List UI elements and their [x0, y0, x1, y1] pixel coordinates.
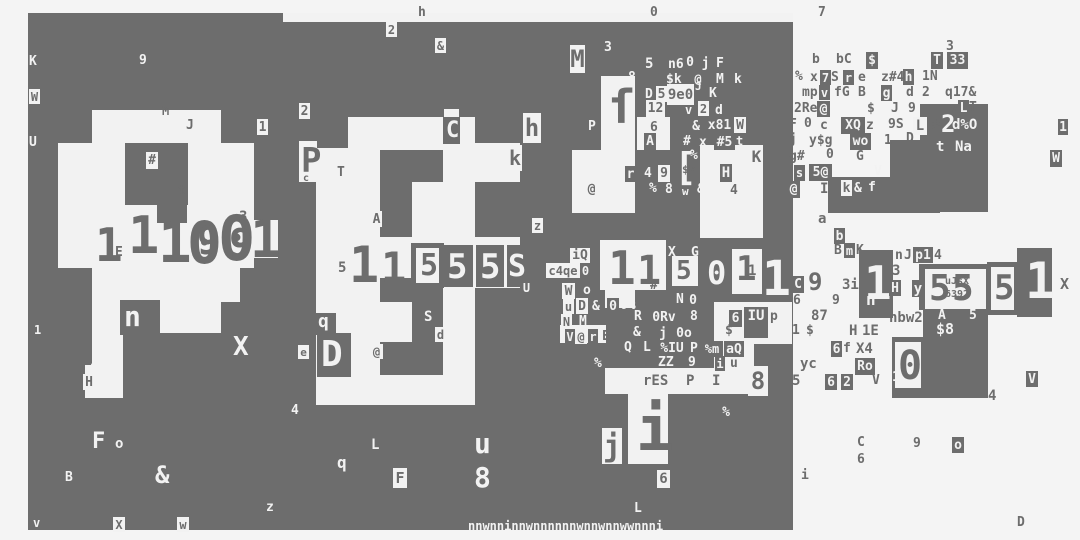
glyph: i — [801, 469, 809, 482]
glyph: u — [730, 357, 738, 370]
glyph: h — [903, 69, 914, 85]
glyph: W — [734, 117, 746, 133]
glyph: n — [866, 292, 876, 308]
glyph: % — [720, 404, 732, 420]
glyph: G — [856, 150, 864, 163]
glyph: X — [233, 334, 249, 360]
glyph: K — [29, 55, 37, 68]
glyph: $8 — [936, 322, 954, 337]
glyph: 8 — [665, 183, 673, 196]
glyph: g — [881, 85, 892, 101]
glyph: y$g — [809, 134, 832, 147]
glyph: $ — [866, 52, 878, 69]
glyph: h — [418, 6, 426, 19]
glyph: $ — [867, 102, 875, 115]
glyph: 0 — [607, 298, 619, 314]
glyph: A — [371, 211, 382, 227]
glyph: 1 — [128, 210, 159, 262]
glyph: 1 — [792, 324, 800, 337]
glyph: 2 — [698, 101, 709, 116]
glyph: 5 — [645, 57, 653, 71]
glyph: 0 — [707, 257, 726, 289]
glyph: X4 — [856, 342, 873, 356]
glyph: h — [523, 113, 541, 143]
glitch-art-canvas: h072&K9WUMJ#t1211E11090913nXsHFoB&vXwz4q… — [0, 0, 1080, 540]
glyph: %g — [708, 151, 724, 164]
glyph: x81 — [706, 117, 733, 133]
glyph: d — [435, 327, 446, 342]
glyph: k — [734, 73, 742, 86]
glyph: mp — [802, 86, 818, 99]
gray-block — [380, 342, 443, 375]
glyph: S — [508, 252, 526, 282]
glyph: 5@ — [809, 164, 832, 181]
glyph: %m — [701, 341, 723, 357]
glyph: 5 — [676, 258, 692, 284]
glyph: 6 — [857, 453, 865, 466]
glyph: b — [812, 53, 820, 66]
glyph: n — [124, 303, 141, 331]
glyph: x — [810, 71, 818, 84]
glyph: 2 — [386, 22, 397, 37]
glyph: t — [736, 135, 743, 147]
glyph: S — [424, 310, 432, 324]
glyph: f — [843, 342, 851, 355]
glyph: L — [913, 117, 927, 135]
glyph: 0 — [804, 117, 812, 130]
glyph: 5 — [480, 250, 500, 284]
glyph: z — [266, 501, 274, 514]
glyph: P — [686, 374, 694, 388]
glyph: 1 — [257, 119, 268, 135]
glyph: D — [321, 337, 343, 373]
glyph: Q — [624, 341, 632, 354]
glyph: 1 — [884, 134, 892, 147]
glyph: I — [820, 182, 828, 196]
glyph: L — [643, 341, 651, 354]
glyph: 3 — [239, 210, 247, 224]
gray-block — [380, 182, 412, 237]
glyph: # — [932, 119, 940, 132]
glyph: M — [570, 45, 585, 73]
glyph: r — [625, 166, 636, 182]
glyph: T — [337, 166, 345, 179]
glyph: iQ — [570, 248, 590, 263]
glyph: % — [649, 182, 657, 195]
glyph: 3 — [892, 264, 900, 278]
glyph: V — [874, 165, 882, 178]
glyph: & — [435, 38, 446, 53]
glyph: aQ — [724, 341, 744, 357]
glyph: M — [579, 315, 587, 328]
glyph: c — [303, 174, 309, 184]
glyph: N — [561, 314, 572, 329]
glyph: d — [906, 86, 914, 99]
glyph: T — [931, 52, 943, 69]
glyph: 5 — [338, 261, 346, 275]
glyph: 1 — [748, 264, 756, 278]
glyph: t — [936, 140, 944, 154]
glyph: V — [565, 329, 575, 344]
glyph: 9 — [197, 222, 220, 260]
glyph: 6 — [831, 341, 842, 357]
glyph: bC — [836, 53, 852, 66]
glyph: j — [789, 133, 797, 146]
glyph: e — [298, 345, 309, 359]
glyph: 0o — [674, 325, 694, 341]
glyph: 9 — [913, 437, 921, 450]
glyph: c4qe — [546, 263, 580, 278]
glyph: D — [576, 298, 588, 314]
glyph: m — [844, 243, 855, 258]
glyph: c — [820, 119, 828, 132]
glyph: 33 — [947, 52, 968, 69]
white-block — [316, 375, 475, 405]
glyph: i — [636, 398, 673, 460]
glyph: 2 — [922, 86, 930, 99]
glyph: K — [750, 146, 763, 166]
glyph: h — [731, 151, 739, 164]
glyph: 6 — [657, 470, 670, 488]
glyph: 7 — [820, 70, 831, 85]
glyph: F — [789, 118, 797, 131]
glyph: 9 — [832, 294, 840, 307]
glyph: 0 — [684, 54, 696, 71]
glyph: v — [685, 104, 692, 116]
glyph: d — [715, 104, 723, 117]
glyph: H — [849, 324, 857, 338]
glyph: E — [602, 330, 610, 343]
glyph: 9e0 — [667, 84, 694, 105]
glyph: g# — [789, 150, 805, 163]
glyph: 5 — [792, 374, 800, 388]
glyph: S — [831, 71, 839, 84]
glyph: D — [1017, 516, 1025, 529]
glyph: 0 — [650, 6, 658, 19]
glyph: X — [1060, 277, 1069, 292]
glyph: ſ — [608, 84, 636, 130]
gray-block — [380, 150, 443, 182]
glyph: v — [33, 517, 40, 529]
glyph: X — [113, 517, 125, 532]
glyph: IU — [744, 307, 768, 325]
glyph: o — [952, 437, 964, 453]
white-block — [444, 109, 459, 117]
glyph: $ — [806, 324, 814, 337]
glyph: p1 — [913, 247, 933, 263]
white-block — [92, 110, 221, 143]
glyph: ZZ — [658, 356, 674, 369]
glyph: 6 — [793, 294, 801, 307]
glyph: U — [521, 280, 532, 295]
glyph: 2 — [299, 103, 310, 119]
glyph: x — [699, 136, 707, 149]
glyph: X — [668, 246, 676, 259]
glyph: 3 — [604, 41, 612, 54]
glyph: J — [695, 81, 702, 92]
white-block — [283, 13, 793, 22]
glyph: M — [716, 73, 724, 86]
glyph: o — [583, 284, 591, 297]
glyph: u — [474, 430, 491, 458]
glyph: Na — [955, 140, 972, 154]
glyph: @ — [575, 329, 587, 344]
glyph: rES — [643, 374, 668, 388]
glyph: s — [90, 360, 97, 372]
glyph: s — [794, 165, 805, 181]
glyph: F — [716, 57, 724, 70]
glyph: 0 — [826, 148, 834, 161]
glyph: 4 — [730, 184, 738, 197]
glyph: @ — [787, 181, 800, 198]
glyph: @ — [585, 181, 598, 198]
glyph: n — [895, 249, 903, 262]
glyph: j — [700, 55, 711, 71]
glyph: e — [858, 71, 866, 84]
glyph: a — [818, 212, 826, 226]
glyph: 6392 — [945, 290, 969, 300]
glyph: 5 — [969, 309, 977, 322]
glyph: 1 — [250, 214, 281, 266]
glyph: K — [856, 244, 864, 257]
glyph: z — [866, 119, 874, 132]
glyph: 4 — [644, 167, 652, 180]
glyph: 4 — [291, 404, 299, 417]
glyph: B — [65, 471, 73, 484]
glyph: 5 — [420, 251, 438, 281]
glyph: 2 — [841, 374, 853, 390]
glyph: 3i — [842, 278, 859, 292]
glyph: L — [958, 100, 969, 116]
glyph: j — [602, 428, 622, 464]
glyph: C — [446, 120, 459, 142]
glyph: XQ — [841, 117, 865, 134]
glyph: z — [532, 218, 543, 233]
glyph: j — [658, 325, 668, 341]
glyph: q — [337, 455, 347, 471]
glyph: 8 — [690, 310, 698, 323]
glyph: 1N — [922, 70, 938, 83]
glyph: F — [393, 468, 407, 488]
glyph: M — [162, 105, 169, 117]
glyph: f — [868, 181, 876, 194]
glyph: 4 — [988, 389, 996, 403]
glyph: @ — [370, 344, 383, 359]
glyph: G — [691, 246, 699, 259]
glyph: C — [792, 276, 804, 293]
glyph: P — [690, 342, 698, 355]
glyph: & — [592, 300, 600, 313]
glyph: 5 — [994, 271, 1014, 305]
glyph: 9 — [808, 270, 822, 294]
glyph: 0 — [580, 263, 591, 278]
glyph: $ — [725, 324, 733, 337]
glyph: 9S — [888, 118, 904, 131]
glyph: W — [562, 283, 575, 299]
glyph: 1E — [862, 324, 879, 338]
glyph: V — [872, 374, 880, 387]
glyph: K — [709, 87, 717, 100]
glyph: 1 — [762, 255, 791, 303]
glyph: k — [508, 145, 522, 171]
glyph: B — [834, 244, 842, 257]
gray-block — [828, 203, 940, 213]
glyph: & — [155, 463, 169, 487]
glyph: q — [318, 313, 329, 331]
glyph: n6 — [668, 58, 684, 71]
glyph: 1 — [349, 240, 379, 290]
glyph: E — [115, 246, 123, 259]
glyph: b — [834, 228, 845, 244]
glyph: fG — [834, 86, 850, 99]
glyph: P — [588, 120, 596, 133]
glyph: 1 — [1025, 256, 1055, 306]
glyph: H — [720, 164, 732, 182]
glyph: # — [650, 279, 658, 292]
glyph: 1 — [381, 247, 406, 289]
glyph: D — [906, 132, 914, 145]
glyph: q17& — [945, 86, 976, 99]
glyph: J — [891, 102, 899, 115]
glyph: 9 — [908, 102, 916, 115]
glyph: & — [854, 182, 862, 195]
glyph: L — [634, 502, 642, 515]
glyph: @ — [817, 101, 830, 117]
glyph: uJsX — [945, 277, 969, 287]
glyph: 0 — [898, 346, 922, 386]
glyph: w — [682, 186, 689, 197]
glyph: y — [912, 280, 924, 297]
glyph: 9 — [688, 356, 696, 369]
glyph: B — [858, 86, 866, 99]
glyph: V — [1026, 371, 1038, 387]
glyph: v — [819, 85, 830, 100]
glyph: 9 — [658, 165, 670, 182]
glyph: p — [770, 310, 778, 323]
glyph: nbw2 — [889, 311, 923, 325]
glyph: #5 — [714, 134, 735, 150]
glyph: r — [588, 329, 598, 344]
glyph: % — [795, 70, 803, 83]
glyph: N — [676, 293, 684, 306]
glyph: U — [29, 136, 37, 149]
glyph: % — [594, 357, 602, 370]
glyph: F — [92, 431, 105, 453]
glyph: J — [186, 119, 194, 132]
glyph: r — [843, 70, 854, 85]
glyph: 0Rv — [650, 309, 678, 326]
glyph: k — [841, 180, 852, 196]
glyph: 1 — [34, 324, 41, 336]
glyph: H — [83, 374, 95, 390]
glyph: t — [178, 184, 185, 196]
glyph: u — [563, 299, 574, 314]
glyph: o — [115, 437, 123, 451]
glyph: L — [371, 438, 379, 452]
glyph: nnwnninnwnnnnnnwnnwnnwwnnni — [468, 520, 663, 532]
glyph: 8 — [748, 366, 768, 396]
glyph: R — [634, 310, 642, 323]
glyph: 1 — [608, 245, 636, 291]
glyph: & — [697, 183, 705, 196]
glyph: W — [1050, 150, 1062, 167]
glyph: d%O — [952, 118, 977, 132]
glyph: J — [904, 249, 912, 262]
glyph: & — [690, 118, 702, 134]
glyph: 6 — [825, 374, 837, 390]
glyph: H — [889, 280, 901, 296]
glyph: 5 — [447, 250, 467, 284]
glyph: .. — [628, 138, 641, 149]
glyph: 1 — [1058, 119, 1068, 135]
glyph: C — [857, 436, 865, 449]
glyph: T — [969, 101, 977, 114]
glyph: 9 — [139, 54, 147, 67]
glyph: yc — [800, 357, 817, 371]
glyph: W — [29, 89, 40, 104]
glyph: 4 — [934, 249, 942, 262]
glyph: 87 — [811, 309, 828, 323]
glyph: # — [146, 152, 158, 169]
glyph: A — [644, 133, 656, 150]
glyph: & — [633, 326, 641, 339]
glyph: wo — [850, 133, 871, 150]
glyph: w — [177, 517, 189, 532]
glyph: 8 — [474, 464, 491, 492]
glyph: 0 — [687, 292, 699, 308]
glyph: 2Re — [794, 102, 817, 115]
glyph: I — [712, 374, 720, 388]
glyph: z#4 — [881, 71, 904, 84]
glyph: 12 — [646, 100, 665, 117]
glyph: i — [715, 356, 725, 371]
glyph: $k — [682, 164, 695, 175]
glyph: 7 — [818, 6, 826, 19]
